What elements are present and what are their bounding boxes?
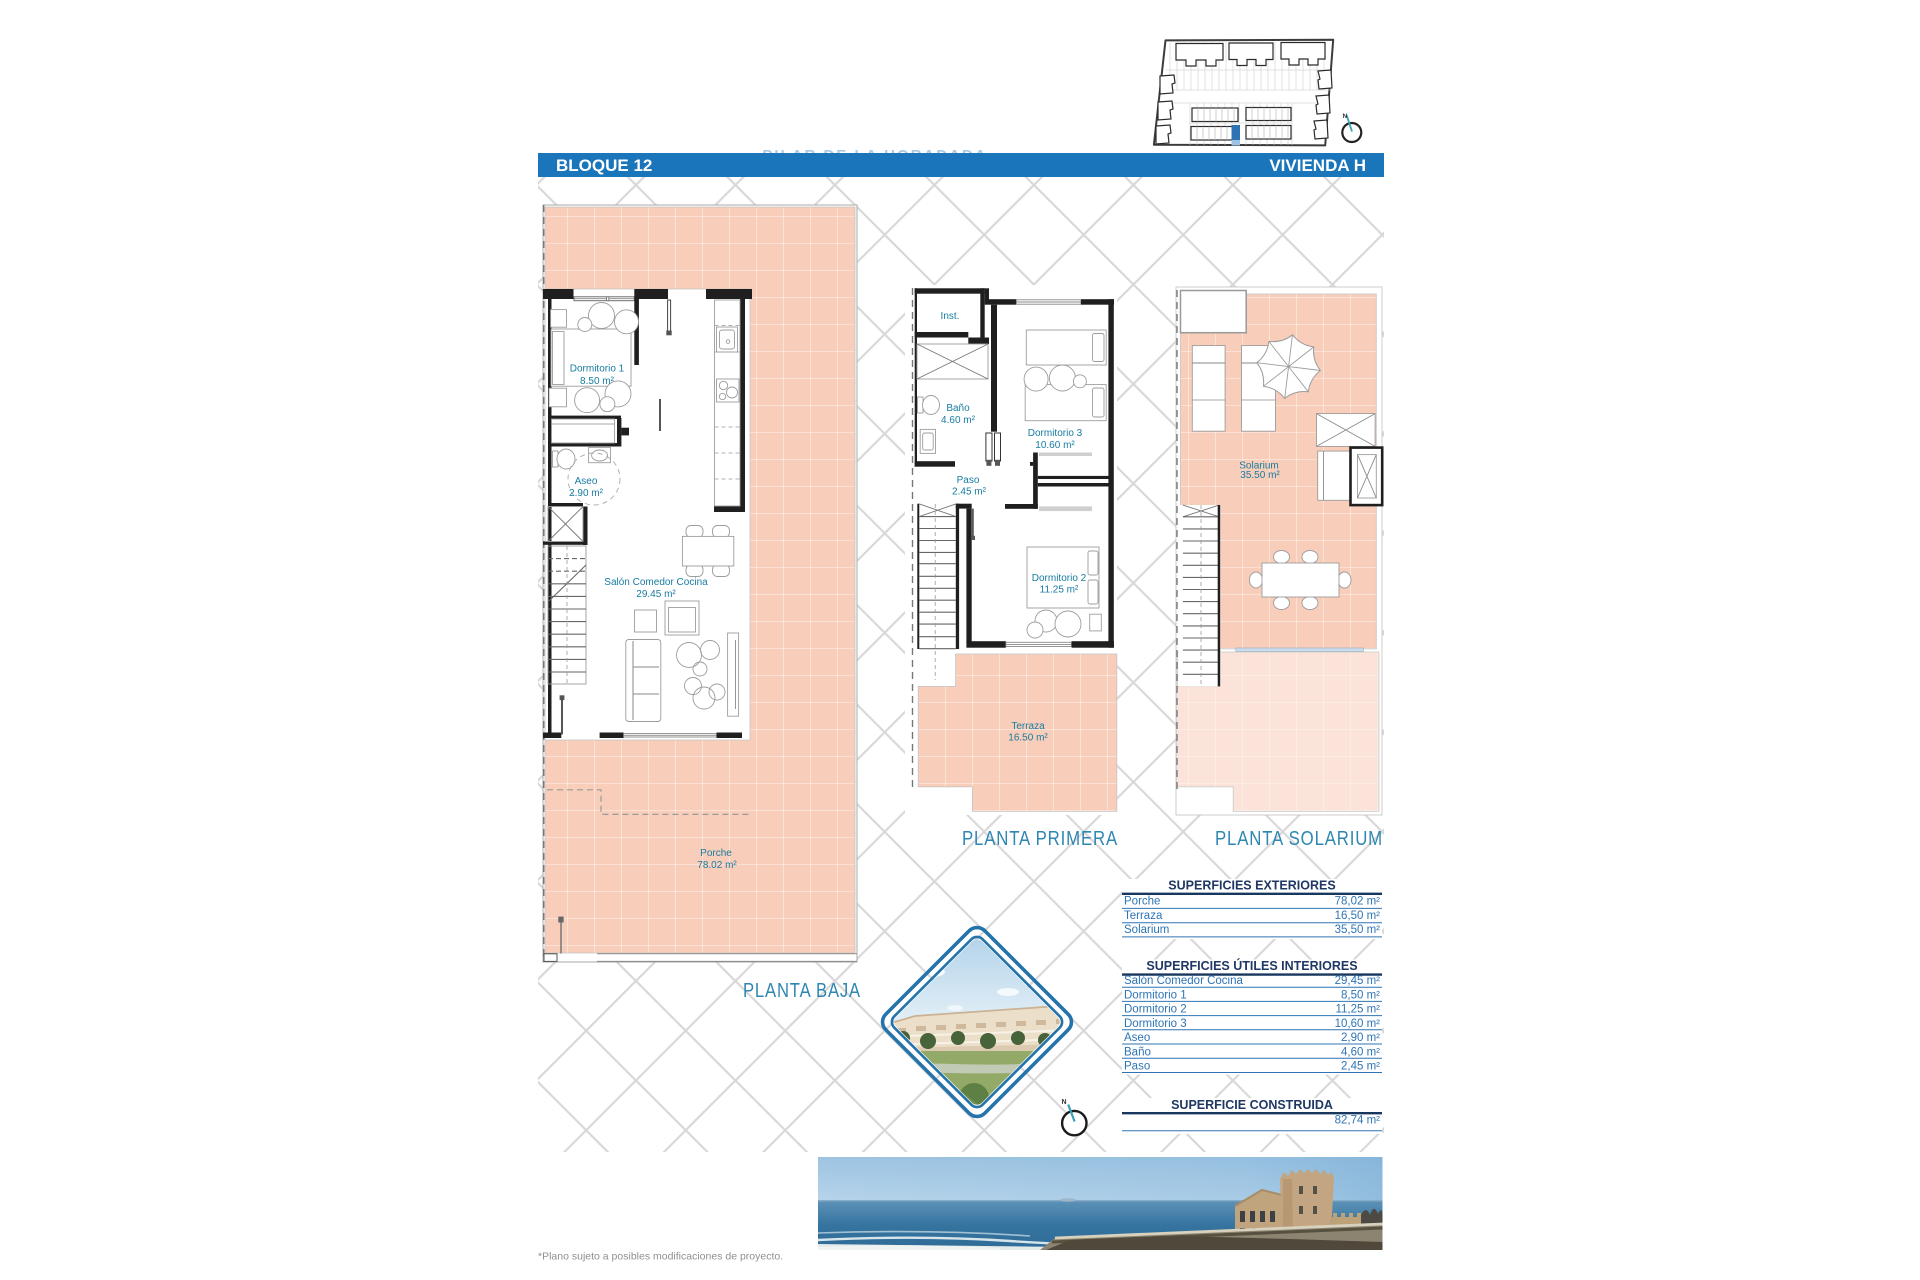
svg-text:16.50 m²: 16.50 m² (1008, 733, 1048, 744)
svg-text:Dormitorio 1: Dormitorio 1 (1124, 989, 1187, 1001)
svg-text:Baño: Baño (1124, 1046, 1151, 1058)
svg-text:4.60 m²: 4.60 m² (941, 415, 976, 426)
svg-text:29.45 m²: 29.45 m² (636, 589, 676, 600)
svg-text:35.50 m²: 35.50 m² (1240, 470, 1280, 481)
svg-text:Solarium: Solarium (1124, 924, 1169, 936)
svg-text:Dormitorio 3: Dormitorio 3 (1028, 428, 1083, 439)
svg-text:Dormitorio 1: Dormitorio 1 (570, 364, 625, 375)
svg-text:29,45 m²: 29,45 m² (1335, 975, 1381, 987)
svg-text:10.60 m²: 10.60 m² (1035, 440, 1075, 451)
svg-text:2.45 m²: 2.45 m² (952, 487, 987, 498)
svg-text:35,50 m²: 35,50 m² (1335, 924, 1381, 936)
svg-text:82,74 m²: 82,74 m² (1335, 1115, 1381, 1127)
svg-text:Dormitorio 3: Dormitorio 3 (1124, 1018, 1187, 1030)
svg-text:11.25 m²: 11.25 m² (1040, 585, 1079, 596)
svg-text:78.02 m²: 78.02 m² (697, 860, 737, 871)
svg-text:SUPERFICIE CONSTRUIDA: SUPERFICIE CONSTRUIDA (1171, 1098, 1333, 1112)
svg-text:Inst.: Inst. (941, 311, 960, 322)
svg-text:Salón Comedor Cocina: Salón Comedor Cocina (604, 577, 708, 588)
svg-text:10,60 m²: 10,60 m² (1335, 1018, 1381, 1030)
svg-text:Dormitorio 2: Dormitorio 2 (1124, 1004, 1187, 1016)
svg-text:16,50 m²: 16,50 m² (1335, 910, 1381, 922)
svg-text:Porche: Porche (700, 848, 732, 859)
svg-text:SUPERFICIES ÚTILES INTERIORES: SUPERFICIES ÚTILES INTERIORES (1146, 958, 1357, 973)
svg-text:Terraza: Terraza (1011, 721, 1045, 732)
svg-text:*Plano sujeto a posibles modif: *Plano sujeto a posibles modificaciones … (538, 1251, 783, 1263)
svg-text:VIVIENDA H: VIVIENDA H (1269, 156, 1366, 175)
svg-text:Paso: Paso (957, 475, 980, 486)
svg-text:8.50 m²: 8.50 m² (580, 376, 615, 387)
svg-text:PLANTA PRIMERA: PLANTA PRIMERA (962, 828, 1118, 850)
svg-text:Porche: Porche (1124, 896, 1160, 908)
svg-text:PLANTA SOLARIUM: PLANTA SOLARIUM (1215, 828, 1383, 850)
svg-text:PLANTA BAJA: PLANTA BAJA (743, 980, 861, 1002)
svg-text:N: N (1342, 113, 1347, 120)
svg-text:Salón Comedor Cocina: Salón Comedor Cocina (1124, 975, 1244, 987)
svg-text:4,60 m²: 4,60 m² (1341, 1046, 1380, 1058)
svg-text:8,50 m²: 8,50 m² (1341, 989, 1380, 1001)
svg-text:2,90 m²: 2,90 m² (1341, 1032, 1380, 1044)
svg-text:2,45 m²: 2,45 m² (1341, 1061, 1380, 1073)
svg-text:Terraza: Terraza (1124, 910, 1163, 922)
svg-text:2.90 m²: 2.90 m² (569, 488, 604, 499)
svg-text:Aseo: Aseo (575, 476, 598, 487)
svg-text:N: N (1061, 1099, 1066, 1106)
svg-text:Dormitorio 2: Dormitorio 2 (1032, 573, 1087, 584)
svg-text:BLOQUE 12: BLOQUE 12 (556, 156, 652, 175)
svg-text:SUPERFICIES EXTERIORES: SUPERFICIES EXTERIORES (1168, 879, 1335, 893)
svg-text:Paso: Paso (1124, 1061, 1150, 1073)
svg-text:Aseo: Aseo (1124, 1032, 1150, 1044)
svg-text:78,02 m²: 78,02 m² (1335, 896, 1381, 908)
svg-text:Baño: Baño (946, 403, 970, 414)
svg-text:11,25 m²: 11,25 m² (1335, 1004, 1380, 1016)
